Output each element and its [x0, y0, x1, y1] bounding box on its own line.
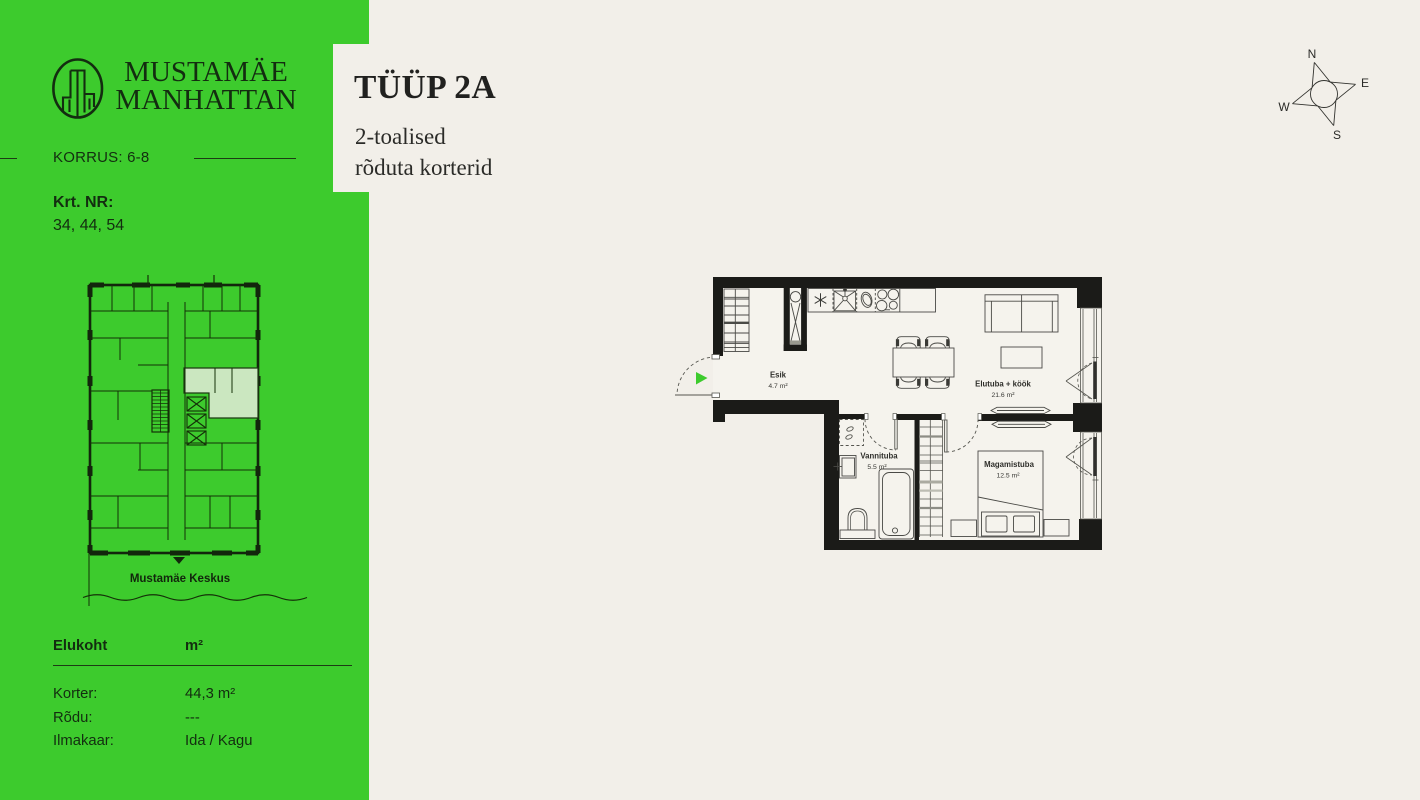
svg-text:21.6 m²: 21.6 m²: [991, 392, 1015, 399]
svg-text:Mustamäe Keskus: Mustamäe Keskus: [130, 573, 230, 585]
svg-text:W: W: [1278, 100, 1290, 114]
svg-text:12.5 m²: 12.5 m²: [996, 473, 1020, 480]
svg-text:S: S: [1333, 128, 1341, 142]
svg-text:5.5 m²: 5.5 m²: [867, 464, 887, 471]
svg-text:Magamistuba: Magamistuba: [984, 460, 1034, 469]
svg-text:4.7 m²: 4.7 m²: [768, 383, 788, 390]
svg-text:Elutuba + köök: Elutuba + köök: [975, 380, 1031, 389]
svg-text:Esik: Esik: [770, 371, 787, 380]
svg-text:N: N: [1308, 47, 1317, 61]
svg-text:Vannituba: Vannituba: [860, 452, 898, 461]
svg-text:E: E: [1361, 76, 1369, 90]
